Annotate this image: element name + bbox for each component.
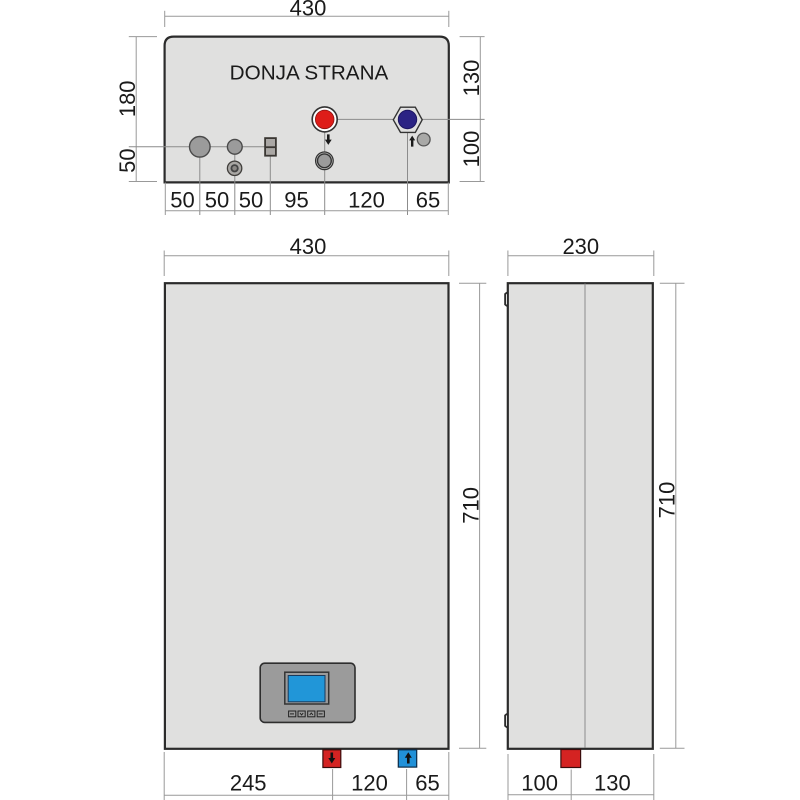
- svg-text:100: 100: [459, 131, 484, 168]
- svg-text:120: 120: [348, 187, 385, 212]
- svg-text:430: 430: [290, 234, 327, 259]
- svg-text:130: 130: [594, 771, 631, 796]
- svg-text:120: 120: [351, 771, 388, 796]
- svg-text:230: 230: [562, 234, 599, 259]
- svg-text:50: 50: [115, 148, 140, 172]
- svg-text:65: 65: [415, 771, 439, 796]
- svg-text:710: 710: [655, 482, 680, 519]
- svg-text:180: 180: [115, 80, 140, 117]
- svg-text:DONJA STRANA: DONJA STRANA: [230, 62, 389, 85]
- svg-text:50: 50: [170, 187, 194, 212]
- svg-text:430: 430: [290, 0, 327, 20]
- svg-text:245: 245: [230, 771, 267, 796]
- svg-text:65: 65: [416, 187, 440, 212]
- svg-text:50: 50: [239, 187, 263, 212]
- svg-text:95: 95: [284, 187, 308, 212]
- svg-text:710: 710: [458, 487, 483, 524]
- svg-text:130: 130: [459, 60, 484, 97]
- svg-text:100: 100: [521, 771, 558, 796]
- svg-text:50: 50: [205, 187, 229, 212]
